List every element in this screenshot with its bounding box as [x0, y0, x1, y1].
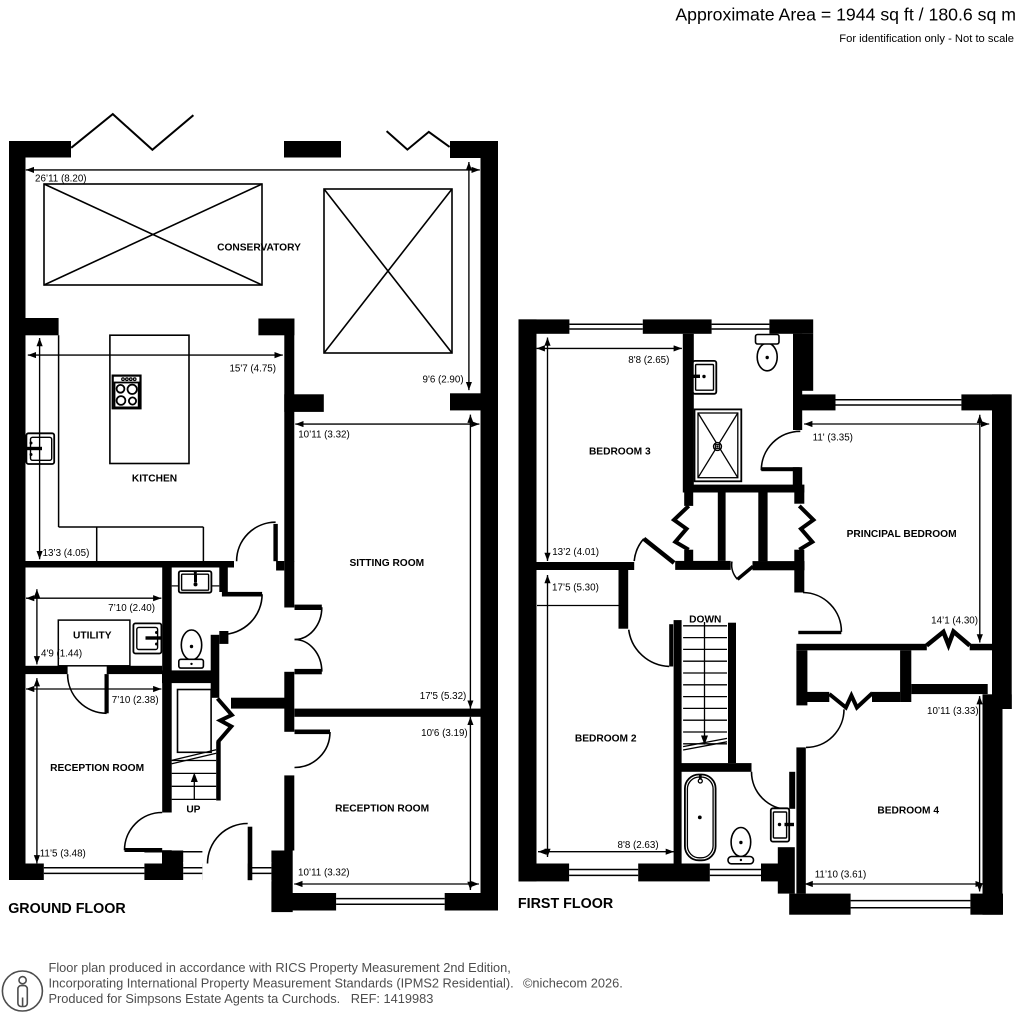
svg-text:13’3 (4.05): 13’3 (4.05): [43, 548, 90, 559]
svg-text:9'6 (2.90): 9'6 (2.90): [423, 374, 464, 385]
svg-text:GROUND FLOOR: GROUND FLOOR: [8, 901, 126, 917]
svg-text:©nichecom 2026.: ©nichecom 2026.: [523, 975, 623, 990]
svg-text:RECEPTION ROOM: RECEPTION ROOM: [50, 763, 144, 774]
svg-text:10'6 (3.19): 10'6 (3.19): [421, 728, 468, 739]
svg-text:17’5 (5.30): 17’5 (5.30): [552, 583, 599, 594]
svg-text:10’11 (3.32): 10’11 (3.32): [298, 430, 350, 441]
svg-text:7’10 (2.38): 7’10 (2.38): [112, 695, 159, 706]
svg-text:CONSERVATORY: CONSERVATORY: [217, 243, 301, 254]
svg-text:SITTING ROOM: SITTING ROOM: [349, 558, 424, 569]
svg-text:Incorporating International Pr: Incorporating International Property Mea…: [49, 975, 514, 990]
svg-text:4'9 (1.44): 4'9 (1.44): [41, 649, 82, 660]
svg-text:10’11 (3.32): 10’11 (3.32): [298, 868, 350, 879]
svg-text:11’5 (3.48): 11’5 (3.48): [40, 849, 86, 860]
svg-text:17'5 (5.32): 17'5 (5.32): [420, 691, 467, 702]
svg-text:14’1 (4.30): 14’1 (4.30): [931, 616, 978, 627]
svg-text:13’2 (4.01): 13’2 (4.01): [552, 547, 599, 558]
svg-text:FIRST FLOOR: FIRST FLOOR: [518, 896, 614, 912]
svg-text:Produced for Simpsons Estate A: Produced for Simpsons Estate Agents ta C…: [49, 991, 434, 1006]
svg-text:7’10 (2.40): 7’10 (2.40): [108, 603, 155, 614]
svg-text:KITCHEN: KITCHEN: [132, 474, 177, 485]
svg-text:11' (3.35): 11' (3.35): [813, 433, 853, 444]
svg-text:11’10 (3.61): 11’10 (3.61): [815, 870, 867, 881]
svg-text:Floor plan produced in accorda: Floor plan produced in accordance with R…: [49, 960, 511, 975]
svg-text:8'8 (2.65): 8'8 (2.65): [628, 355, 669, 366]
svg-text:UTILITY: UTILITY: [73, 630, 112, 641]
svg-text:15'7 (4.75): 15'7 (4.75): [229, 364, 276, 375]
svg-text:BEDROOM 2: BEDROOM 2: [575, 734, 637, 745]
svg-text:BEDROOM 3: BEDROOM 3: [589, 447, 651, 458]
svg-text:RECEPTION ROOM: RECEPTION ROOM: [335, 803, 429, 814]
svg-text:UP: UP: [186, 805, 200, 816]
svg-text:8'8 (2.63): 8'8 (2.63): [618, 840, 659, 851]
svg-text:BEDROOM 4: BEDROOM 4: [877, 806, 939, 817]
svg-text:PRINCIPAL BEDROOM: PRINCIPAL BEDROOM: [847, 529, 957, 540]
svg-text:10’11 (3.33): 10’11 (3.33): [927, 706, 979, 717]
svg-text:DOWN: DOWN: [689, 615, 721, 626]
svg-text:For identification only - Not: For identification only - Not to scale: [839, 33, 1014, 45]
svg-text:Approximate Area = 1944 sq ft: Approximate Area = 1944 sq ft / 180.6 sq…: [675, 5, 1016, 25]
svg-text:26’11 (8.20): 26’11 (8.20): [35, 174, 87, 185]
